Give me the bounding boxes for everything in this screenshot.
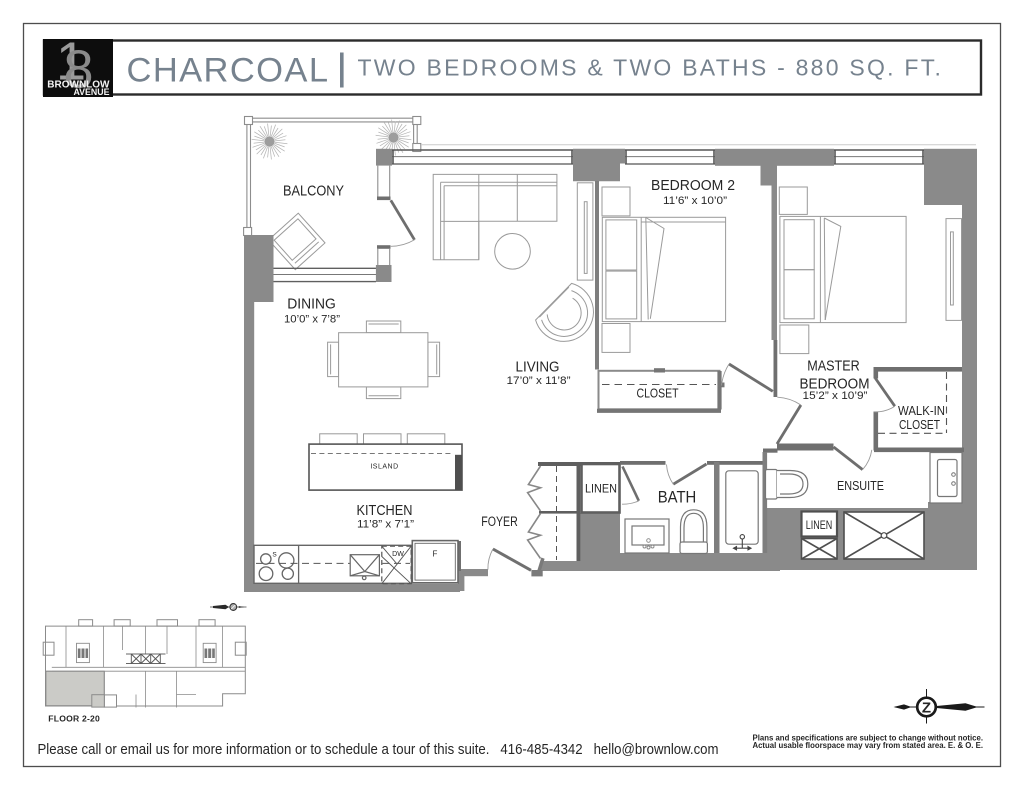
svg-text:FOYER: FOYER	[481, 514, 518, 530]
svg-text:ISLAND: ISLAND	[370, 464, 398, 471]
svg-text:LINEN: LINEN	[585, 482, 617, 496]
svg-text:BALCONY: BALCONY	[283, 182, 344, 199]
svg-text:MASTER: MASTER	[807, 358, 860, 375]
svg-text:FLOOR 2-20: FLOOR 2-20	[48, 714, 100, 724]
svg-text:CHARCOAL: CHARCOAL	[127, 52, 330, 90]
svg-text:Actual usable floorspace may v: Actual usable floorspace may vary from s…	[752, 741, 983, 750]
svg-text:LIVING: LIVING	[516, 358, 560, 375]
svg-text:10’0” x 7’8”: 10’0” x 7’8”	[284, 314, 340, 326]
svg-text:DW: DW	[392, 551, 404, 558]
svg-text:17’0” x 11’8”: 17’0” x 11’8”	[507, 375, 571, 387]
svg-text:DINING: DINING	[287, 296, 336, 313]
svg-text:11’8” x 7’1”: 11’8” x 7’1”	[357, 519, 414, 531]
svg-text:BEDROOM 2: BEDROOM 2	[651, 177, 735, 194]
svg-text:BATH: BATH	[658, 488, 697, 507]
svg-text:11’6” x 10’0”: 11’6” x 10’0”	[663, 195, 727, 207]
svg-text:LINEN: LINEN	[806, 518, 833, 532]
svg-text:Please call or email us for mo: Please call or email us for more informa…	[38, 742, 719, 758]
svg-text:15’2” x 10’9”: 15’2” x 10’9”	[803, 390, 868, 402]
svg-text:AVENUE: AVENUE	[73, 87, 109, 97]
svg-text:CLOSET: CLOSET	[899, 418, 940, 432]
svg-text:S: S	[272, 552, 277, 559]
svg-text:KITCHEN: KITCHEN	[357, 502, 413, 519]
svg-text:Z: Z	[922, 699, 931, 716]
svg-text:TWO BEDROOMS & TWO BATHS - 880: TWO BEDROOMS & TWO BATHS - 880 SQ. FT.	[358, 55, 944, 81]
svg-text:WALK-IN: WALK-IN	[898, 404, 945, 418]
svg-text:CLOSET: CLOSET	[637, 386, 679, 401]
svg-text:F: F	[433, 550, 438, 559]
svg-text:ENSUITE: ENSUITE	[837, 478, 884, 493]
